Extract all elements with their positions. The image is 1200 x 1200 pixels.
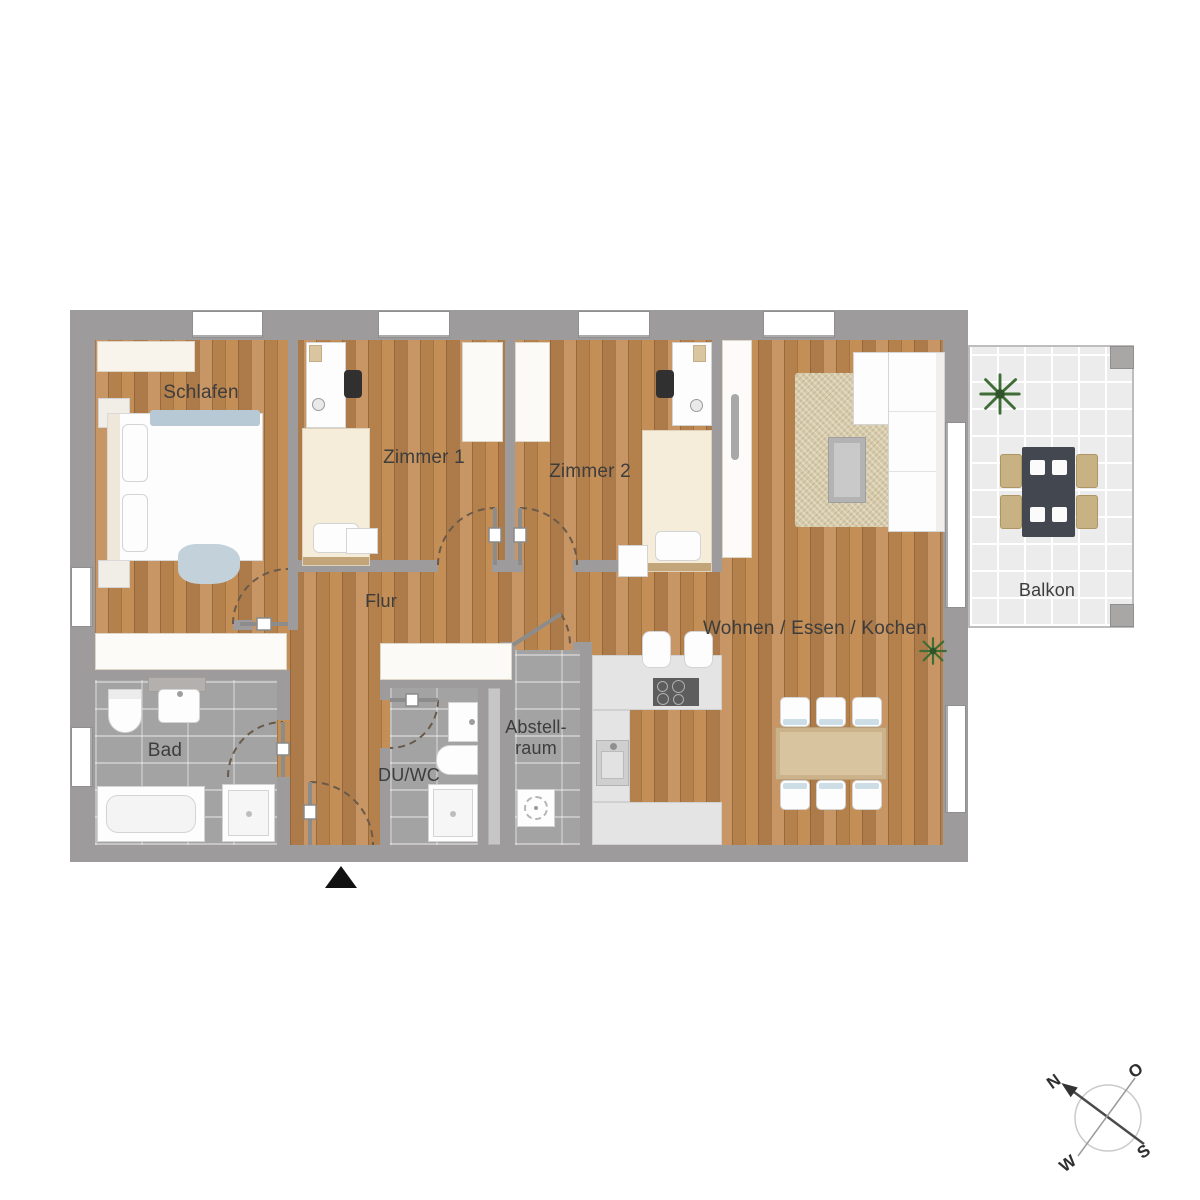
compass-label-o: O: [1125, 1059, 1147, 1082]
entrance-arrow-icon: [325, 866, 357, 888]
door-arc-zimmer2: [520, 508, 577, 565]
door-handle: [489, 528, 501, 542]
door-arc-bad: [228, 722, 283, 777]
room-label-zimmer1: Zimmer 1: [354, 447, 494, 469]
room-label-flur: Flur: [331, 591, 431, 612]
door-leaf-abstellraum: [513, 614, 561, 645]
room-label-zimmer2: Zimmer 2: [520, 461, 660, 483]
door-handle: [304, 805, 316, 819]
door-arc-duwc: [390, 700, 438, 748]
room-label-duwc: DU/WC: [344, 765, 474, 786]
room-label-schlafen: Schlafen: [121, 382, 281, 404]
abstellraum-line2: raum: [466, 738, 606, 759]
compass-label-s: S: [1134, 1141, 1154, 1163]
floor-plan: Balkon: [0, 0, 1200, 1200]
abstellraum-line1: Abstell-: [466, 717, 606, 738]
compass-label-n: N: [1043, 1070, 1064, 1093]
compass-needle: [1074, 1092, 1144, 1144]
room-label-wohnen: Wohnen / Essen / Kochen: [665, 618, 965, 640]
door-arc-abstellraum: [561, 614, 570, 645]
door-arc-schlafen: [233, 569, 288, 624]
door-handle: [406, 694, 418, 706]
room-label-abstellraum: Abstell- raum: [466, 717, 606, 758]
door-handle: [277, 743, 289, 755]
door-arc-entrance: [310, 782, 373, 845]
room-label-bad: Bad: [115, 740, 215, 762]
compass-label-w: W: [1056, 1151, 1081, 1176]
door-handle: [257, 618, 271, 630]
compass-rose: N O S W: [1040, 1048, 1180, 1198]
compass-crossline: [1078, 1078, 1135, 1156]
door-arc-zimmer1: [438, 508, 495, 565]
door-swing-overlay: [0, 0, 1200, 1200]
door-handle: [514, 528, 526, 542]
